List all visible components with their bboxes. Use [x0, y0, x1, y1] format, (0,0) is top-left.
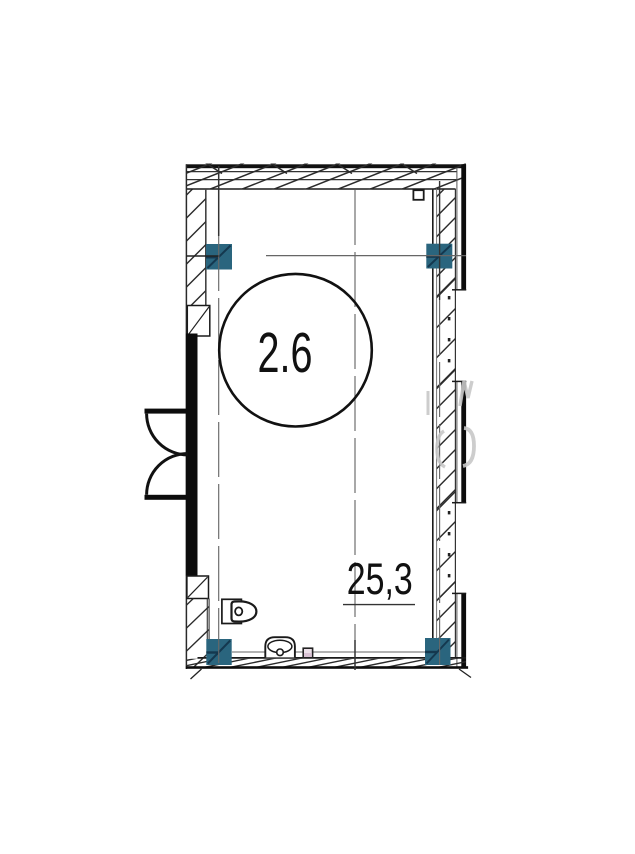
svg-text:25,3: 25,3	[347, 555, 413, 604]
svg-text:2.6: 2.6	[258, 321, 313, 385]
